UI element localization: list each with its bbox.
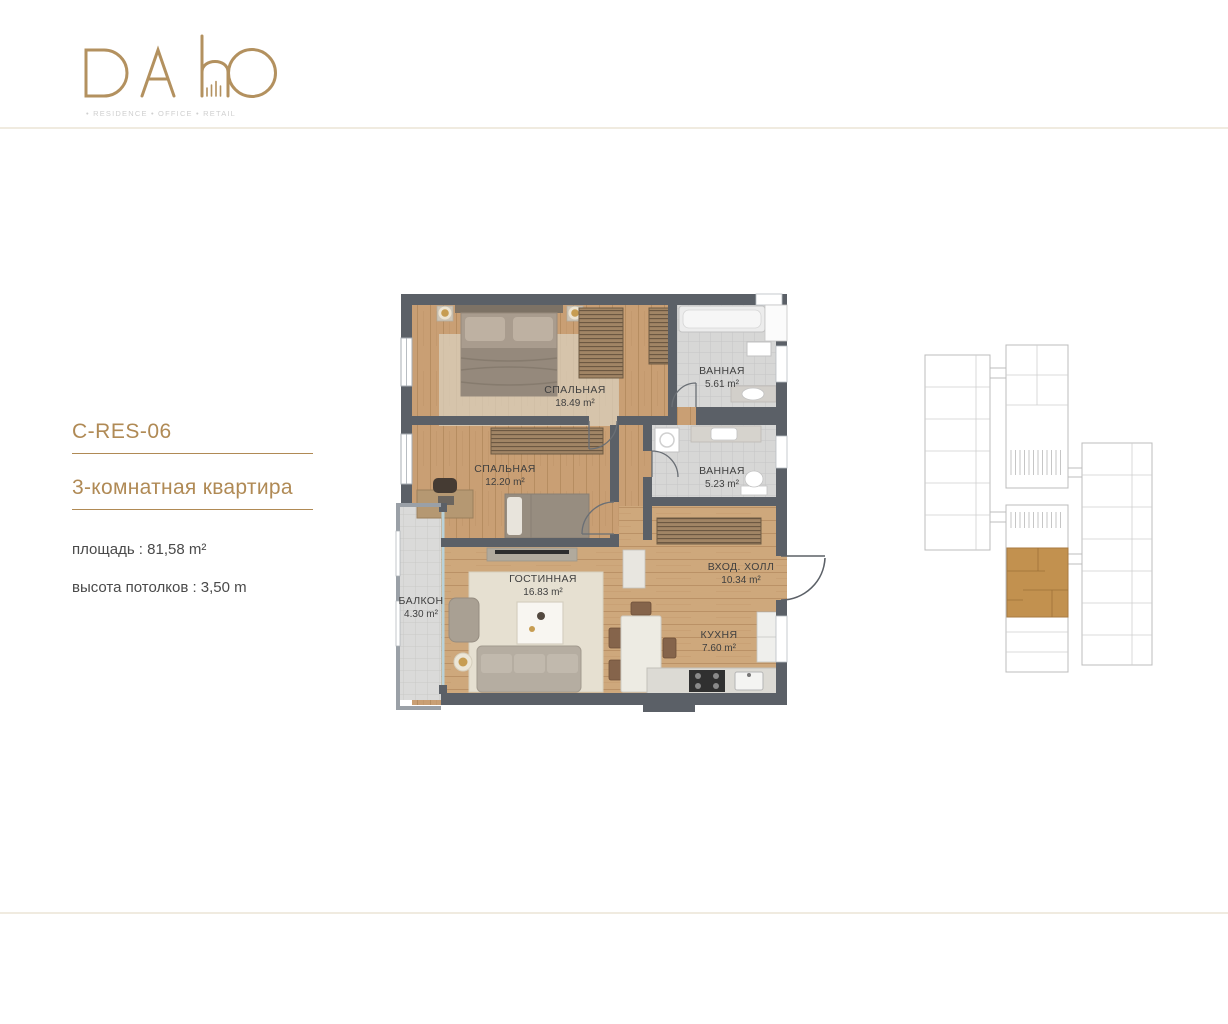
keyplan-blocks	[925, 345, 1152, 672]
apartment-area: площадь : 81,58 m²	[72, 541, 332, 558]
keyplan-highlighted-unit	[1007, 548, 1068, 617]
keyplan	[918, 342, 1168, 677]
top-divider	[0, 127, 1228, 129]
brand-mark-icon	[86, 36, 276, 97]
brochure-page: • RESIDENCE • OFFICE • RETAIL C-RES-06 3…	[0, 0, 1228, 1024]
apartment-ceiling-height: высота потолков : 3,50 m	[72, 579, 332, 596]
floorplan	[391, 286, 831, 726]
bottom-divider	[0, 912, 1228, 914]
brand-logo: • RESIDENCE • OFFICE • RETAIL	[80, 28, 315, 127]
apartment-type: 3-комнатная квартира	[72, 476, 313, 510]
brand-tagline: • RESIDENCE • OFFICE • RETAIL	[86, 109, 236, 118]
apartment-info: C-RES-06 3-комнатная квартира площадь : …	[72, 420, 332, 596]
apartment-code: C-RES-06	[72, 420, 313, 454]
